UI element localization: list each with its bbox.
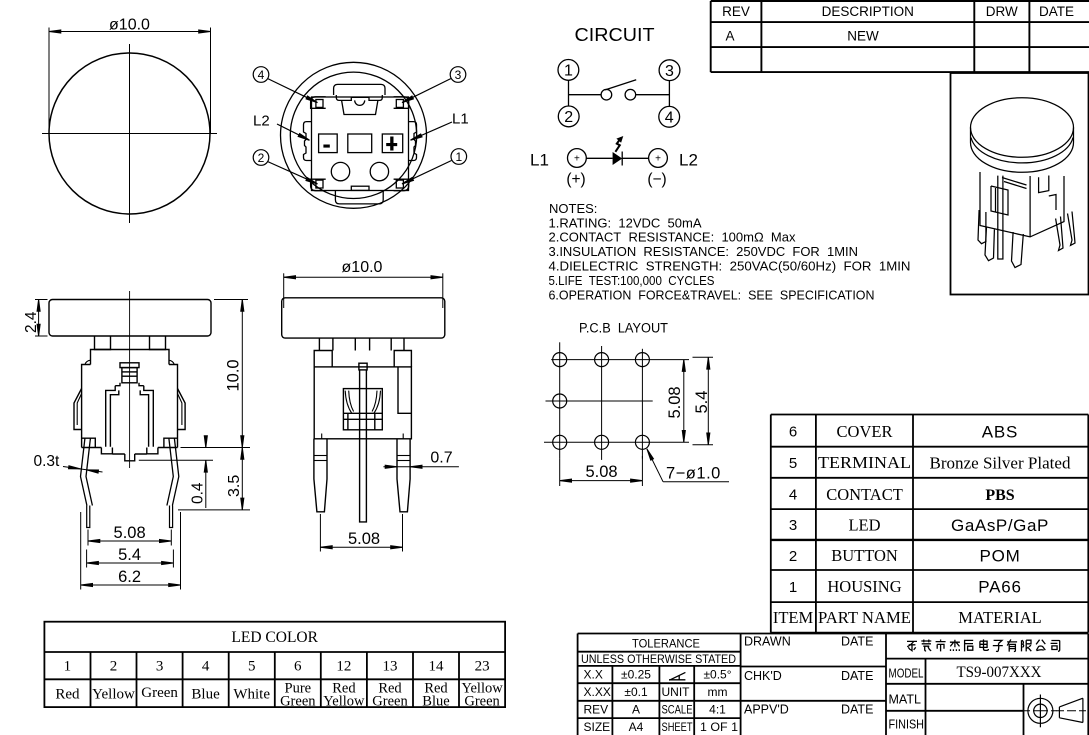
svg-text:LED: LED [848,515,880,534]
svg-text:PBS: PBS [985,487,1014,504]
svg-text:±0.25: ±0.25 [621,668,651,682]
svg-text:3: 3 [455,68,462,82]
svg-text:10.0: 10.0 [225,359,243,391]
svg-text:Green: Green [464,694,500,710]
svg-text:3.5: 3.5 [226,475,243,497]
svg-text:2: 2 [789,548,797,565]
svg-text:SCALE: SCALE [662,703,693,717]
svg-text:Yellow: Yellow [92,687,135,703]
svg-text:ø10.0: ø10.0 [109,17,150,34]
svg-text:L1: L1 [452,111,469,128]
svg-text:FINISH: FINISH [889,718,925,732]
svg-text:TOLERANCE: TOLERANCE [632,637,700,651]
svg-text:14: 14 [429,659,445,675]
svg-text:Green: Green [141,685,178,701]
svg-text:DATE: DATE [1039,4,1074,19]
svg-text:4: 4 [665,110,674,127]
svg-text:4: 4 [202,659,210,675]
svg-text:Green: Green [372,694,408,710]
svg-text:4: 4 [789,487,797,504]
svg-text:6.2: 6.2 [118,568,141,586]
svg-text:1 OF 1: 1 OF 1 [700,720,738,734]
svg-text:5.4: 5.4 [118,546,141,564]
svg-text:5: 5 [789,455,797,472]
svg-text:±0.5°: ±0.5° [703,668,731,682]
svg-text:±0.1: ±0.1 [624,685,648,699]
svg-text:+: + [574,154,580,165]
svg-text:L2: L2 [253,113,270,130]
svg-text:DATE: DATE [841,703,873,717]
svg-text:Blue: Blue [191,687,220,703]
svg-text:TERMINAL: TERMINAL [818,453,911,472]
svg-text:6: 6 [294,659,302,675]
svg-text:+: + [655,154,661,165]
svg-text:NEW: NEW [847,29,879,44]
svg-text:PART NAME: PART NAME [818,608,911,627]
svg-text:Green: Green [280,694,316,710]
svg-text:TS9-007XXX: TS9-007XXX [957,664,1042,681]
svg-text:4.DIELECTRIC STRENGTH: 250VA: 4.DIELECTRIC STRENGTH: 250VAC(50/60Hz) F… [549,259,911,274]
svg-text:POM: POM [979,547,1020,566]
svg-text:5.08: 5.08 [348,530,380,548]
svg-text:mm: mm [708,685,728,699]
svg-text:6: 6 [789,424,797,441]
svg-text:COVER: COVER [837,422,893,441]
svg-text:SHEET: SHEET [662,720,694,734]
svg-text:UNIT: UNIT [662,685,691,699]
svg-text:1: 1 [564,63,573,80]
svg-text:(+): (+) [566,171,585,188]
svg-text:GaAsP/GaP: GaAsP/GaP [951,516,1049,535]
svg-text:3: 3 [789,517,797,534]
svg-text:DRAWN: DRAWN [744,635,791,649]
svg-text:CHK'D: CHK'D [744,669,782,683]
svg-text:UNLESS OTHERWISE STATED: UNLESS OTHERWISE STATED [581,652,736,666]
svg-text:P.C.B LAYOUT: P.C.B LAYOUT [579,321,668,336]
svg-text:DATE: DATE [841,635,873,649]
svg-text:L1: L1 [530,151,549,170]
svg-text:X.X: X.X [584,668,603,682]
svg-text:REV: REV [584,703,609,717]
svg-text:X.XX: X.XX [584,685,611,699]
svg-text:A4: A4 [629,720,644,734]
svg-text:Yellow: Yellow [323,694,365,710]
svg-text:3: 3 [156,659,164,675]
svg-text:5.LIFE TEST:100,000 CYCLES: 5.LIFE TEST:100,000 CYCLES [549,273,715,288]
svg-text:7−ø1.0: 7−ø1.0 [666,465,721,483]
svg-text:12: 12 [336,659,351,675]
svg-text:A: A [725,29,734,44]
svg-text:5.08: 5.08 [666,386,684,418]
svg-text:3: 3 [665,63,674,80]
svg-text:1: 1 [64,659,72,675]
svg-text:2.CONTACT RESISTANCE: 100mΩ: 2.CONTACT RESISTANCE: 100mΩ Max [549,230,796,245]
svg-text:MATL: MATL [889,692,921,706]
svg-text:DRW: DRW [986,4,1018,19]
svg-text:White: White [233,687,270,703]
svg-text:L2: L2 [679,151,698,170]
svg-text:NOTES:: NOTES: [549,201,597,216]
svg-text:0.3t: 0.3t [34,453,61,470]
svg-text:4:1: 4:1 [709,703,726,717]
svg-text:1.RATING: 12VDC 50mA: 1.RATING: 12VDC 50mA [549,215,702,230]
svg-text:2: 2 [564,109,573,126]
svg-text:5.4: 5.4 [693,391,711,414]
svg-text:PA66: PA66 [978,578,1022,597]
svg-text:(−): (−) [647,171,666,188]
svg-text:ABS: ABS [982,423,1018,442]
svg-text:1: 1 [789,579,797,596]
svg-text:Blue: Blue [422,694,449,710]
svg-text:23: 23 [475,659,490,675]
svg-text:Red: Red [55,687,80,703]
svg-text:A: A [632,703,640,717]
svg-text:CIRCUIT: CIRCUIT [575,24,655,45]
svg-text:5.08: 5.08 [114,524,146,542]
svg-text:4: 4 [258,68,265,82]
svg-text:CONTACT: CONTACT [826,485,903,504]
svg-text:HOUSING: HOUSING [827,577,901,596]
svg-text:SIZE: SIZE [584,720,611,734]
svg-text:APPV'D: APPV'D [744,703,789,717]
svg-text:0.4: 0.4 [190,482,207,504]
svg-text:3.INSULATION RESISTANCE: 250: 3.INSULATION RESISTANCE: 250VDC FOR 1MIN [549,244,859,259]
svg-text:ø10.0: ø10.0 [342,259,383,276]
svg-text:2.4: 2.4 [23,311,40,333]
svg-text:DESCRIPTION: DESCRIPTION [822,4,914,19]
svg-text:REV: REV [722,4,750,19]
svg-text:MODEL: MODEL [889,666,924,680]
svg-text:6.OPERATION FORCE&TRAVEL: SE: 6.OPERATION FORCE&TRAVEL: SEE SPECIFICAT… [549,287,875,302]
svg-text:Bronze Silver Plated: Bronze Silver Plated [930,454,1071,473]
svg-text:5.08: 5.08 [585,463,617,481]
svg-text:LED COLOR: LED COLOR [231,629,318,646]
svg-text:BUTTON: BUTTON [831,546,898,565]
svg-text:2: 2 [110,659,118,675]
svg-text:DATE: DATE [841,669,873,683]
svg-text:MATERIAL: MATERIAL [958,608,1041,627]
svg-text:2: 2 [258,151,265,165]
svg-text:13: 13 [383,659,398,675]
svg-text:ITEM: ITEM [773,608,814,627]
svg-text:1: 1 [455,150,462,164]
svg-text:0.7: 0.7 [430,450,452,467]
svg-text:5: 5 [248,659,256,675]
